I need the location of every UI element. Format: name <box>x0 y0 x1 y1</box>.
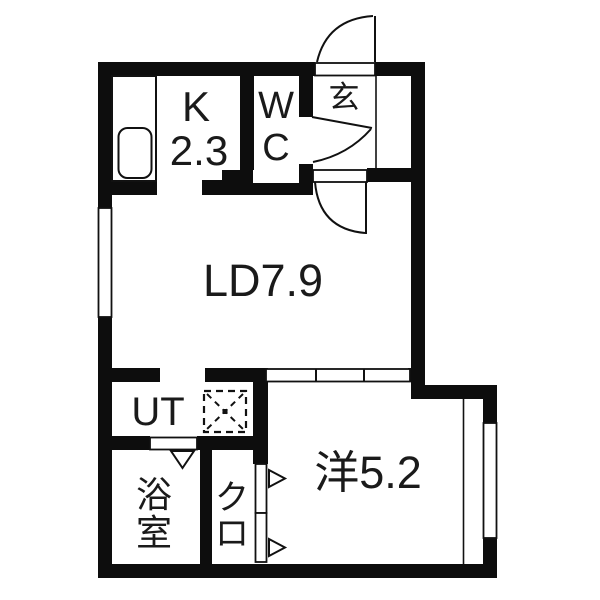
closet-door-open-mark <box>269 470 285 487</box>
front-door-sill <box>315 63 375 76</box>
wall-segment <box>98 564 497 578</box>
wall-segment <box>299 73 313 117</box>
ld-door-sill <box>313 170 367 182</box>
sliding-door-track <box>266 369 410 382</box>
wall-segment <box>240 73 254 170</box>
bathroom-door-mark <box>171 451 194 468</box>
closet-label-2: ロ <box>215 515 249 553</box>
wall-segment <box>98 368 160 382</box>
closet-label-1: ク <box>215 479 249 517</box>
closet-doors <box>256 464 286 562</box>
wall-segment <box>483 385 497 423</box>
bathroom-label-1: 浴 <box>136 474 172 515</box>
closet-door-panel <box>256 464 267 513</box>
kitchen-area-label: 2.3 <box>170 127 228 174</box>
sink <box>119 128 152 178</box>
kitchen-label: K <box>182 83 210 130</box>
wall-segment <box>202 180 253 195</box>
closet-door-panel <box>256 513 267 562</box>
wc-door-swing-arc <box>313 129 371 162</box>
kitchen-counter <box>112 76 156 181</box>
wall-segment <box>367 168 411 182</box>
floor-plan-drawing: K 2.3 W C 玄 LD7.9 UT 浴 室 ク ロ 洋5.2 <box>0 0 600 600</box>
bathroom-door <box>150 438 197 469</box>
living-dining-label: LD7.9 <box>203 255 323 306</box>
wall-segment <box>299 164 313 195</box>
wall-segment <box>253 183 299 195</box>
front-door-swing-arc <box>317 16 373 62</box>
wc-door <box>312 117 372 162</box>
entrance-label: 玄 <box>329 80 360 115</box>
bathroom-label-2: 室 <box>136 512 172 553</box>
washing-machine-space <box>204 391 246 432</box>
wall-segment <box>200 450 212 564</box>
wall-segment <box>98 62 315 76</box>
wall-segment <box>98 181 157 195</box>
western-room-label: 洋5.2 <box>314 447 422 498</box>
ld-door <box>313 170 367 234</box>
window-ld-west <box>99 208 112 317</box>
floor-plan-canvas: K 2.3 W C 玄 LD7.9 UT 浴 室 ク ロ 洋5.2 <box>0 0 600 600</box>
wall-segment <box>98 436 150 450</box>
washer-center-dot <box>223 409 228 414</box>
wc-label-c: C <box>262 127 289 169</box>
closet-door-open-mark <box>269 539 285 556</box>
ld-door-swing-arc <box>315 182 365 233</box>
wall-segment <box>197 436 253 450</box>
wc-label-w: W <box>258 85 294 127</box>
sliding-door-ld-western <box>266 369 410 382</box>
window-western-room-east <box>484 423 497 538</box>
wc-door-leaf <box>312 117 372 128</box>
utility-label: UT <box>131 390 184 434</box>
wall-segment <box>411 62 425 399</box>
front-door <box>315 16 375 76</box>
bathroom-door-sill <box>150 438 197 450</box>
